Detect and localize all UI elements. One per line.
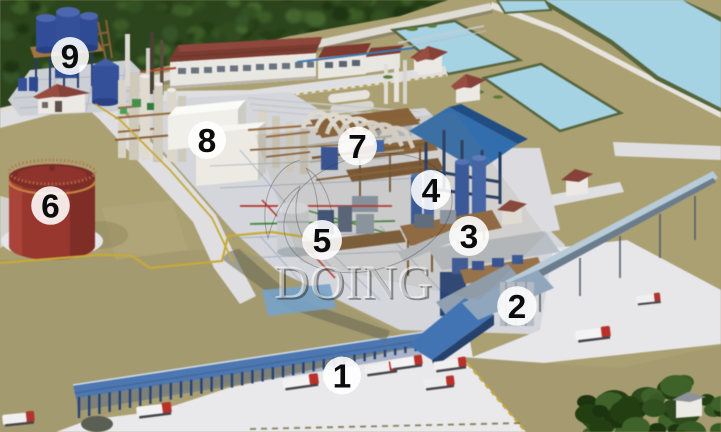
- svg-text:8: 8: [198, 123, 217, 160]
- svg-text:2: 2: [508, 289, 527, 326]
- svg-text:6: 6: [41, 189, 60, 226]
- svg-text:9: 9: [61, 39, 80, 76]
- svg-text:4: 4: [422, 173, 441, 210]
- svg-text:DOING: DOING: [274, 256, 433, 309]
- svg-text:1: 1: [333, 359, 352, 396]
- svg-text:3: 3: [460, 219, 479, 256]
- svg-text:7: 7: [348, 129, 367, 166]
- svg-text:5: 5: [313, 223, 332, 260]
